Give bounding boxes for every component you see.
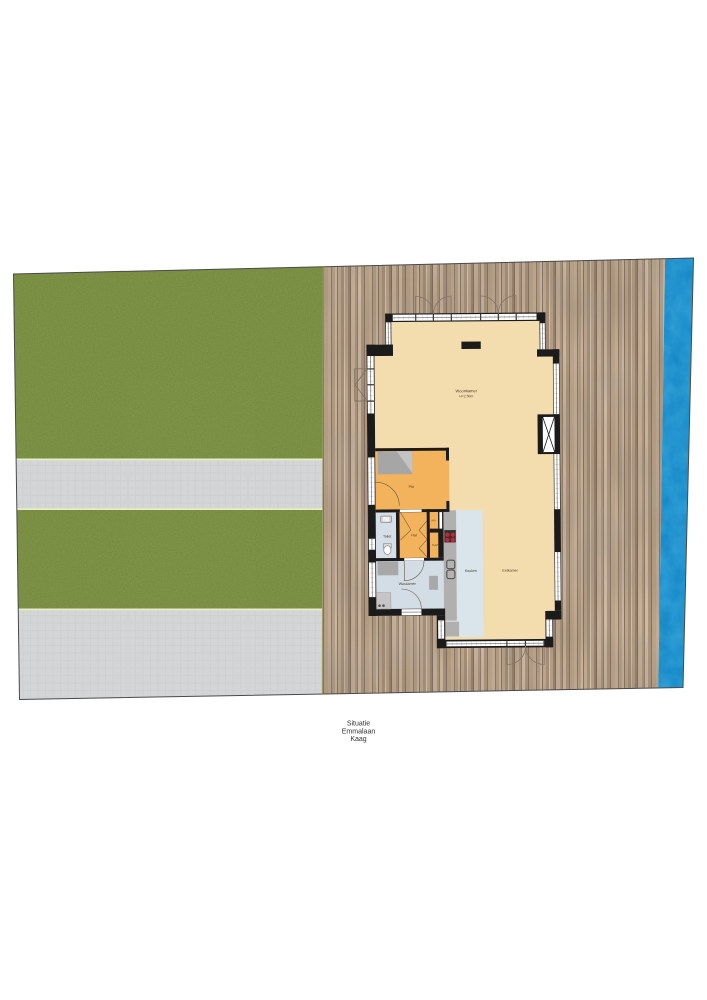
svg-text:Hal: Hal xyxy=(411,533,417,537)
svg-text:Kaag: Kaag xyxy=(350,736,366,743)
svg-text:Emmalaan: Emmalaan xyxy=(342,729,376,736)
svg-text:Toilet: Toilet xyxy=(383,535,391,539)
svg-text:H=2.50m: H=2.50m xyxy=(459,394,473,398)
svg-text:Waskamer: Waskamer xyxy=(399,582,417,586)
svg-text:Kast: Kast xyxy=(432,543,438,547)
svg-text:Situatie: Situatie xyxy=(347,721,370,728)
svg-text:Woonkamer: Woonkamer xyxy=(456,388,478,393)
svg-text:Pia: Pia xyxy=(409,485,414,489)
svg-text:Eetkamer: Eetkamer xyxy=(502,569,518,573)
svg-text:Keuken: Keuken xyxy=(465,569,477,573)
svg-text:Jan: Jan xyxy=(431,518,436,522)
